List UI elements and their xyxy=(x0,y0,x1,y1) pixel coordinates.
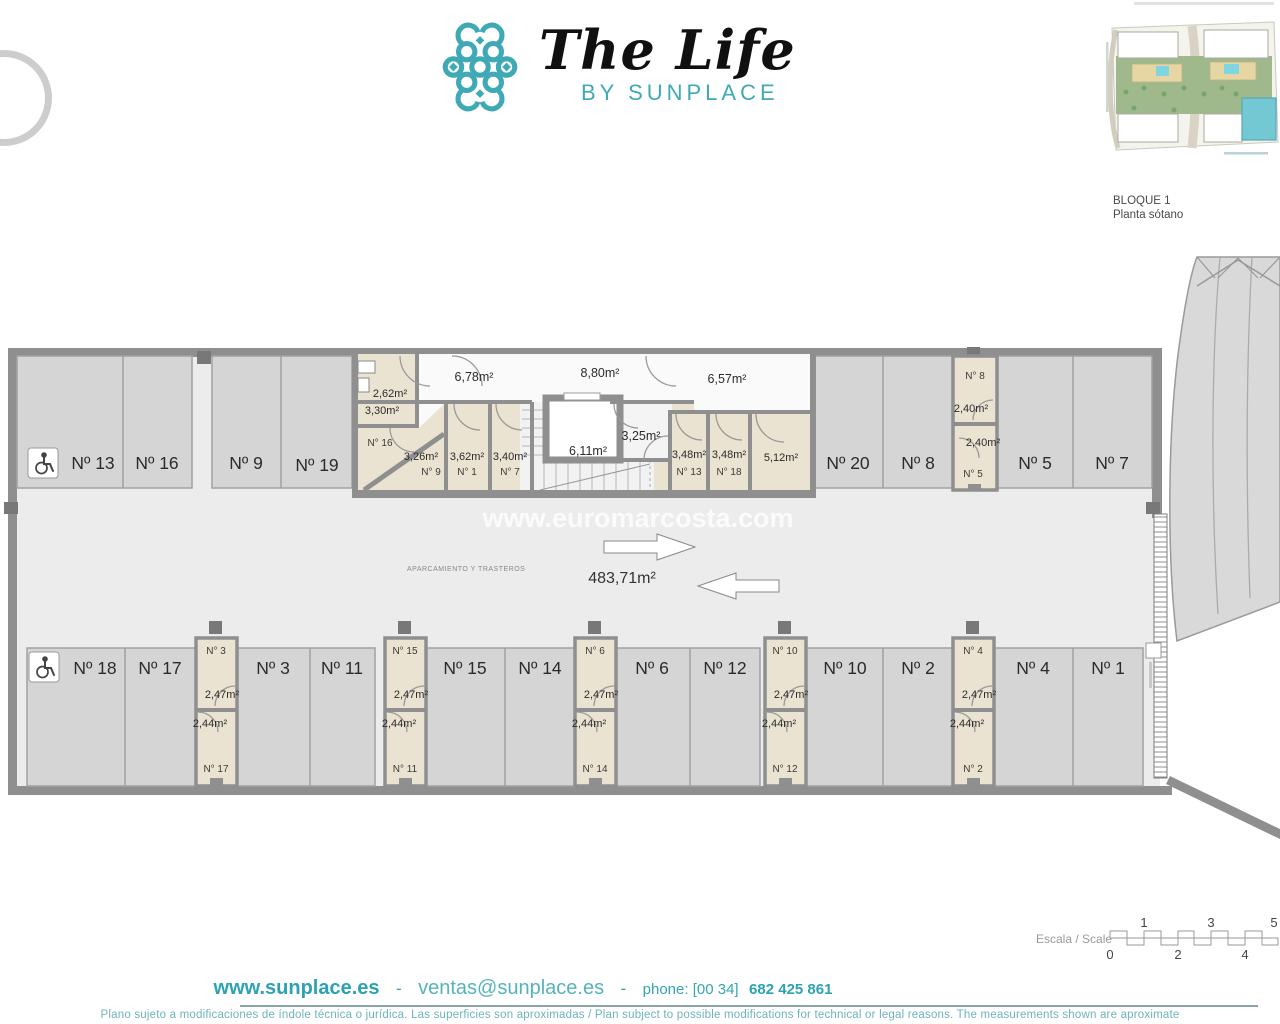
room-label-7: N° 7 xyxy=(500,467,520,478)
fixture-icon xyxy=(358,361,375,373)
parking-label-5: Nº 5 xyxy=(1018,453,1052,473)
separator: - xyxy=(396,979,402,998)
storage-column-3: N° 6 2,47m² 2,44m² N° 14 xyxy=(572,621,619,786)
email-link[interactable]: ventas@sunplace.es xyxy=(418,977,604,999)
scale-label: Escala / Scale xyxy=(1036,932,1112,946)
fixture-icon xyxy=(358,378,369,392)
room-area-18: 3,48m² xyxy=(712,449,747,461)
accessible-parking-icon xyxy=(29,652,59,682)
storage-label: N° 2 xyxy=(963,764,983,775)
room-label-1: N° 1 xyxy=(457,467,477,478)
room-area-262: 2,62m² xyxy=(373,388,408,400)
parking-label-16: Nº 16 xyxy=(135,453,178,473)
corridor-area-2: 8,80m² xyxy=(581,366,620,380)
storage-area-8: 2,40m² xyxy=(954,403,989,415)
parking-label-13: Nº 13 xyxy=(71,453,114,473)
scale-tick: 5 xyxy=(1270,915,1277,930)
storage-label: N° 10 xyxy=(772,646,798,657)
room-area-330: 3,30m² xyxy=(365,405,400,417)
room-area-13: 3,48m² xyxy=(672,449,707,461)
parking-label-8: Nº 8 xyxy=(901,453,935,473)
zone-caption: APARCAMIENTO Y TRASTEROS xyxy=(407,566,525,573)
storage-area-5: 2,40m² xyxy=(966,437,1001,449)
separator: - xyxy=(621,979,627,998)
scale-bar: Escala / Scale 1 3 5 0 2 4 xyxy=(1036,915,1278,962)
room-area-512: 5,12m² xyxy=(764,452,799,464)
gate-fixture xyxy=(1146,643,1161,658)
scale-tick: 1 xyxy=(1140,915,1147,930)
lobby-area: 3,25m² xyxy=(622,429,661,443)
parking-label-2: Nº 2 xyxy=(901,658,935,678)
parking-label-7: Nº 7 xyxy=(1095,453,1129,473)
room-label-18: N° 18 xyxy=(716,467,742,478)
storage-area: 2,47m² xyxy=(394,689,429,701)
storage-area: 2,47m² xyxy=(584,689,619,701)
storage-column-4: N° 10 2,47m² 2,44m² N° 12 xyxy=(762,621,809,786)
floor-plan: Nº 13 Nº 16 Nº 9 Nº 19 Nº 20 Nº 8 Nº 5 N… xyxy=(0,0,1280,1024)
scale-tick: 2 xyxy=(1174,947,1181,962)
watermark: www.euromarcosta.com xyxy=(481,503,793,533)
storage-label: N° 11 xyxy=(393,764,418,775)
storage-area: 2,47m² xyxy=(205,689,240,701)
room-label-9: N° 9 xyxy=(421,467,441,478)
room-area-1: 3,62m² xyxy=(450,451,485,463)
footer-divider xyxy=(240,1005,1258,1007)
parking-label-9: Nº 9 xyxy=(229,453,263,473)
parking-label-14: Nº 14 xyxy=(518,658,562,678)
storage-label: N° 6 xyxy=(585,646,605,657)
page: The Life BY SUNPLACE xyxy=(0,0,1280,1024)
storage-label-8: N° 8 xyxy=(965,371,985,382)
scale-tick: 3 xyxy=(1207,915,1214,930)
storage-area: 2,44m² xyxy=(762,718,797,730)
total-area-label: 483,71m² xyxy=(588,570,656,587)
parking-label-12: Nº 12 xyxy=(703,658,746,678)
diagonal-wall xyxy=(1168,780,1280,835)
storage-column-1: N° 3 2,47m² 2,44m² N° 17 xyxy=(193,621,240,786)
phone-number: 682 425 861 xyxy=(749,981,832,998)
footer-contact: www.sunplace.es - ventas@sunplace.es - p… xyxy=(0,977,1046,1000)
parking-label-15: Nº 15 xyxy=(443,658,486,678)
parking-label-18: Nº 18 xyxy=(73,658,116,678)
storage-column-top: N° 8 2,40m² 2,40m² N° 5 xyxy=(953,347,1000,491)
parking-label-19: Nº 19 xyxy=(295,455,338,475)
storage-label: N° 12 xyxy=(772,764,798,775)
storage-block: 6,78m² 8,80m² 6,57m² 2,62m² 3,30m² N° 16… xyxy=(352,348,816,498)
storage-area: 2,44m² xyxy=(572,718,607,730)
storage-column-5: N° 4 2,47m² 2,44m² N° 2 xyxy=(950,621,997,786)
corridor-area-1: 6,78m² xyxy=(455,370,494,384)
parking-label-20: Nº 20 xyxy=(826,453,870,473)
storage-label: N° 14 xyxy=(582,764,608,775)
parking-label-17: Nº 17 xyxy=(138,658,181,678)
storage-label: N° 3 xyxy=(206,646,226,657)
storage-label-5: N° 5 xyxy=(963,469,983,480)
parking-label-1: Nº 1 xyxy=(1091,658,1125,678)
corridor-area-3: 6,57m² xyxy=(708,372,747,386)
scale-tick: 4 xyxy=(1241,947,1248,962)
room-label-13: N° 13 xyxy=(676,467,702,478)
parking-label-4: Nº 4 xyxy=(1016,658,1050,678)
storage-label: N° 4 xyxy=(963,646,983,657)
storage-label: N° 15 xyxy=(392,646,418,657)
disclaimer-text: Plano sujeto a modificaciones de índole … xyxy=(0,1009,1280,1021)
room-area-7: 3,40m² xyxy=(493,451,528,463)
parking-label-11: Nº 11 xyxy=(321,658,363,678)
parking-label-3: Nº 3 xyxy=(256,658,290,678)
room-label-16: N° 16 xyxy=(367,438,393,449)
room-area-9: 3,26m² xyxy=(404,451,439,463)
website-link[interactable]: www.sunplace.es xyxy=(214,977,380,999)
elevator-door xyxy=(564,393,600,400)
parking-label-10: Nº 10 xyxy=(823,658,867,678)
phone-label: phone: [00 34] xyxy=(643,981,739,998)
storage-area: 2,47m² xyxy=(962,689,997,701)
parking-label-6: Nº 6 xyxy=(635,658,669,678)
storage-area: 2,44m² xyxy=(382,718,417,730)
accessible-parking-icon xyxy=(28,448,58,478)
storage-area: 2,44m² xyxy=(193,718,228,730)
storage-area: 2,44m² xyxy=(950,718,985,730)
storage-column-2: N° 15 2,47m² 2,44m² N° 11 xyxy=(382,621,429,786)
elevator-area: 6,11m² xyxy=(569,444,607,458)
entrance-ramp xyxy=(1170,257,1280,641)
storage-area: 2,47m² xyxy=(774,689,809,701)
storage-label: N° 17 xyxy=(203,764,229,775)
gate-fixture-bar xyxy=(1149,662,1152,688)
scale-tick: 0 xyxy=(1106,947,1113,962)
